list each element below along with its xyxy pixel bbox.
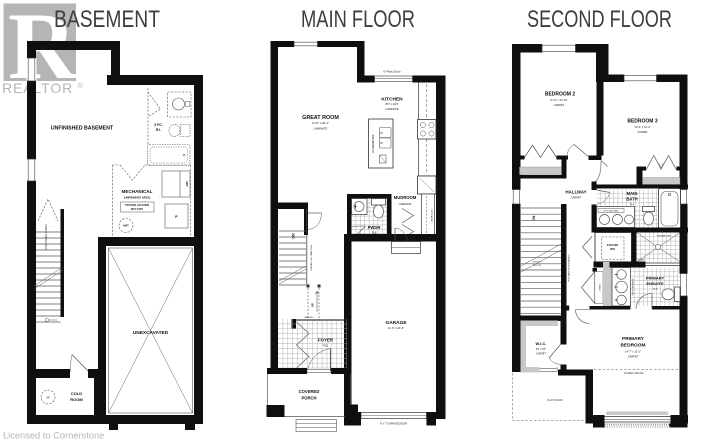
svg-text:PORCH: PORCH xyxy=(301,396,316,401)
svg-text:MAIN FLOOR: MAIN FLOOR xyxy=(301,6,415,33)
svg-text:HRV: HRV xyxy=(185,181,188,186)
svg-text:UNFINISHED STAIRS: UNFINISHED STAIRS xyxy=(44,224,48,250)
svg-text:6' Patio Door: 6' Patio Door xyxy=(383,70,400,74)
svg-text:W.I.C.: W.I.C. xyxy=(536,341,547,346)
svg-text:SP: SP xyxy=(46,395,50,399)
svg-text:REALTOR: REALTOR xyxy=(2,80,73,96)
svg-text:LINEN: LINEN xyxy=(600,284,602,291)
svg-text:10'-4" x 13'-4": 10'-4" x 13'-4" xyxy=(635,125,651,129)
svg-text:CARPET: CARPET xyxy=(571,196,582,200)
svg-text:HWT: HWT xyxy=(123,225,129,228)
svg-text:PWDR: PWDR xyxy=(368,225,381,230)
svg-text:CARPET: CARPET xyxy=(637,130,648,134)
svg-text:UNEXCAVATED: UNEXCAVATED xyxy=(133,330,169,336)
svg-text:SHOWER TILE: SHOWER TILE xyxy=(657,236,671,238)
svg-text:9' x 7' GARAGE DOOR: 9' x 7' GARAGE DOOR xyxy=(380,422,407,426)
svg-text:STACKED: STACKED xyxy=(607,244,619,247)
svg-text:DN: DN xyxy=(532,215,536,220)
svg-text:FULL WALL OPT. RAILING: FULL WALL OPT. RAILING xyxy=(310,245,313,271)
svg-text:11'-6" x 20'-0": 11'-6" x 20'-0" xyxy=(388,326,404,330)
svg-text:BASEMENT: BASEMENT xyxy=(54,6,160,33)
svg-text:EXTENDED BAR: EXTENDED BAR xyxy=(372,134,375,152)
svg-text:KITCHEN: KITCHEN xyxy=(381,97,403,103)
svg-text:11'-6" x 20'-1": 11'-6" x 20'-1" xyxy=(312,121,329,125)
svg-text:TILE: TILE xyxy=(323,345,328,348)
svg-text:FOYER: FOYER xyxy=(318,338,334,343)
svg-text:FULL WALL W/ OPT. RAILING: FULL WALL W/ OPT. RAILING xyxy=(568,254,571,282)
svg-text:R.I.: R.I. xyxy=(156,128,161,132)
svg-text:14'-7" x 12'-1": 14'-7" x 12'-1" xyxy=(625,350,641,354)
svg-text:BATH: BATH xyxy=(626,197,637,202)
svg-text:TILE: TILE xyxy=(630,204,635,206)
svg-text:®: ® xyxy=(78,81,84,90)
svg-text:BEDROOM 2: BEDROOM 2 xyxy=(545,92,576,98)
svg-text:CARPET: CARPET xyxy=(536,353,546,356)
svg-text:RAILING: RAILING xyxy=(305,316,314,319)
svg-text:LAMINATE: LAMINATE xyxy=(314,127,328,131)
svg-text:LAMINATE: LAMINATE xyxy=(399,202,412,206)
svg-text:TILE: TILE xyxy=(653,289,658,291)
svg-text:COLD: COLD xyxy=(71,391,82,396)
svg-text:UNFINISHED BASEMENT: UNFINISHED BASEMENT xyxy=(51,126,114,132)
svg-text:MUDROOM: MUDROOM xyxy=(394,195,417,200)
svg-text:MECHANICAL: MECHANICAL xyxy=(122,189,153,194)
svg-text:FLAT ROOF: FLAT ROOF xyxy=(547,398,563,402)
svg-text:W/D: W/D xyxy=(610,248,615,251)
svg-text:ROOM: ROOM xyxy=(70,397,83,402)
svg-text:OPT. PANTRY: OPT. PANTRY xyxy=(430,210,433,224)
svg-text:COVERED: COVERED xyxy=(299,389,320,394)
svg-text:BEDROOM 3: BEDROOM 3 xyxy=(627,119,658,125)
svg-text:SECOND FLOOR: SECOND FLOOR xyxy=(527,6,672,33)
svg-text:OPEN TO: OPEN TO xyxy=(532,262,542,264)
svg-text:OPT. DBL SINK: OPT. DBL SINK xyxy=(603,211,619,213)
svg-text:GLASS: GLASS xyxy=(638,259,645,262)
svg-text:8'6" x 14'0": 8'6" x 14'0" xyxy=(385,102,398,106)
svg-text:3 PC.: 3 PC. xyxy=(154,123,163,127)
svg-text:HALLWAY: HALLWAY xyxy=(565,190,586,195)
svg-text:MAY VARY: MAY VARY xyxy=(131,208,143,211)
svg-text:MAIN: MAIN xyxy=(627,191,638,196)
svg-text:Licensed to Cornerstone: Licensed to Cornerstone xyxy=(3,431,104,441)
svg-text:CARPET: CARPET xyxy=(628,355,639,359)
svg-text:UP: UP xyxy=(311,303,315,307)
svg-text:PRIMARY: PRIMARY xyxy=(622,336,645,342)
svg-text:RAISED CEILING: RAISED CEILING xyxy=(624,372,643,375)
svg-text:PRIMARY: PRIMARY xyxy=(646,276,665,281)
svg-text:5'6" x 5'6": 5'6" x 5'6" xyxy=(536,348,547,351)
svg-text:BELOW: BELOW xyxy=(533,265,542,267)
svg-text:(UNFINISHED AREA): (UNFINISHED AREA) xyxy=(124,196,151,200)
svg-text:DN: DN xyxy=(292,233,296,239)
svg-text:9'-11" x 13'-10": 9'-11" x 13'-10" xyxy=(550,98,567,102)
svg-text:CARPET: CARPET xyxy=(554,103,565,107)
svg-text:BEDROOM: BEDROOM xyxy=(620,343,645,349)
svg-text:ENSUITE: ENSUITE xyxy=(646,281,664,286)
svg-text:LAMINATE: LAMINATE xyxy=(385,107,398,111)
svg-text:HIS & HER SINKS: HIS & HER SINKS xyxy=(633,278,635,295)
svg-text:UTILITIES LOCATION: UTILITIES LOCATION xyxy=(125,204,150,207)
svg-text:GARAGE: GARAGE xyxy=(385,320,407,326)
